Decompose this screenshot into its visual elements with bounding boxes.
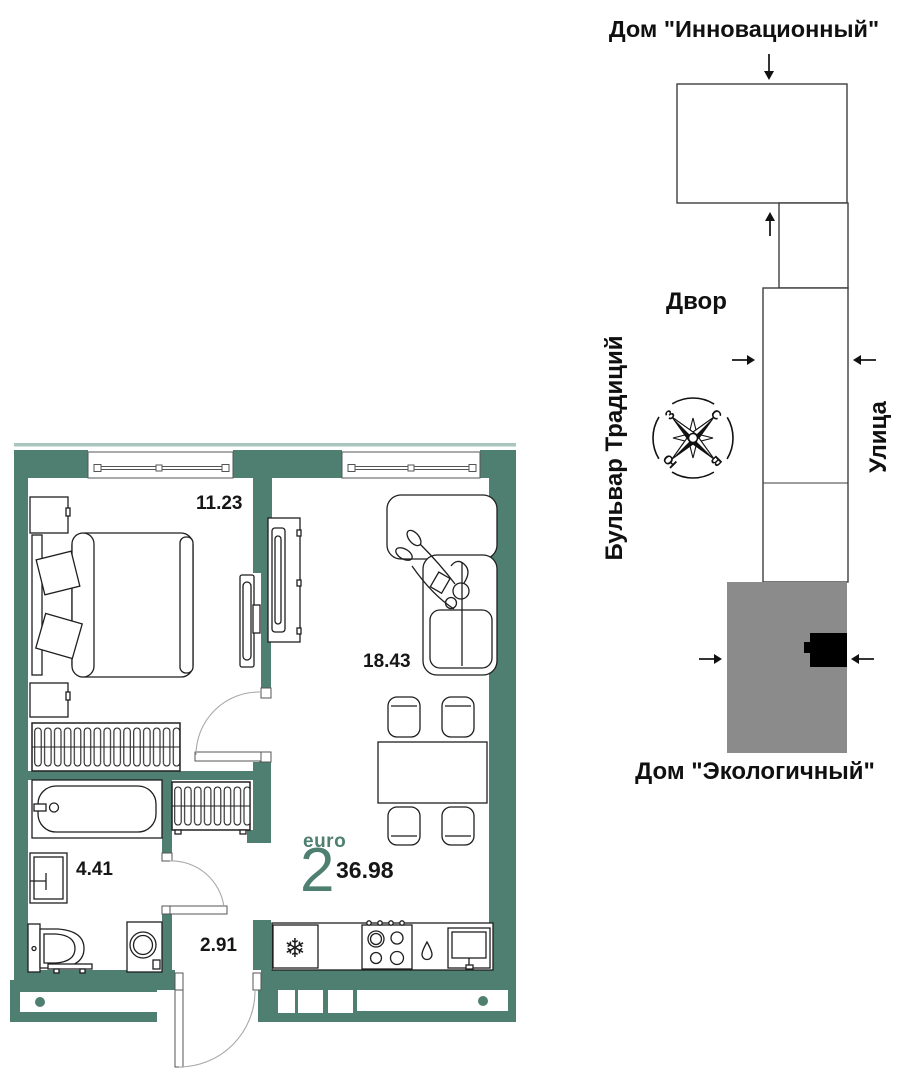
arrow-right-icon <box>699 654 722 664</box>
building-innovative <box>677 84 847 203</box>
compass-icon: С З В Ю <box>653 398 733 478</box>
nightstand <box>30 497 70 533</box>
arrow-right-icon <box>732 355 755 365</box>
kitchen-counter: ❄ <box>272 921 493 970</box>
bedroom-area-label: 11.23 <box>196 493 243 515</box>
building-ecological <box>727 582 847 753</box>
bedroom-tv <box>240 575 260 667</box>
hall-wardrobe <box>172 782 250 834</box>
tv-console <box>268 518 301 642</box>
bathroom-door <box>162 853 227 914</box>
building-connector <box>779 203 848 288</box>
bathroom-sink <box>30 853 67 903</box>
boulevard-label: Бульвар Традиций <box>601 335 629 560</box>
bathtub <box>32 780 162 838</box>
bathroom-area-label: 4.41 <box>76 859 113 881</box>
bedroom-wardrobe <box>32 723 180 771</box>
arrow-up-icon <box>765 212 775 236</box>
arrow-left-icon <box>853 355 876 365</box>
street-label: Улица <box>865 401 893 473</box>
total-area-label: 36.98 <box>336 857 394 884</box>
arrow-down-icon <box>764 54 774 80</box>
apartment-listing-view: ❄ 11.23 18.43 4.41 2.91 euro 2 36.98 <box>0 0 918 1079</box>
floorplan: ❄ <box>10 440 520 1072</box>
yard-label: Двор <box>666 288 727 316</box>
house-bottom-title: Дом "Экологичный" <box>576 758 918 786</box>
washing-machine <box>127 922 162 972</box>
rooms-count-label: 2 <box>300 840 334 902</box>
bed <box>32 533 193 677</box>
stove <box>362 921 412 969</box>
living-area-label: 18.43 <box>363 651 411 673</box>
street-block <box>763 288 848 582</box>
dining-set <box>378 697 487 845</box>
bedroom-door <box>195 688 271 762</box>
arrow-left-icon <box>851 654 874 664</box>
toilet <box>28 924 92 973</box>
apartment-location-marker <box>804 633 847 667</box>
snowflake-icon: ❄ <box>284 934 306 964</box>
exterior-outline <box>14 443 516 447</box>
hall-area-label: 2.91 <box>200 935 237 957</box>
window-living <box>342 452 480 478</box>
window-bedroom <box>88 452 233 478</box>
house-top-title: Дом "Инновационный" <box>560 16 918 43</box>
entry-door <box>175 973 261 1067</box>
nightstand <box>30 683 70 717</box>
kitchen-sink <box>448 928 490 969</box>
